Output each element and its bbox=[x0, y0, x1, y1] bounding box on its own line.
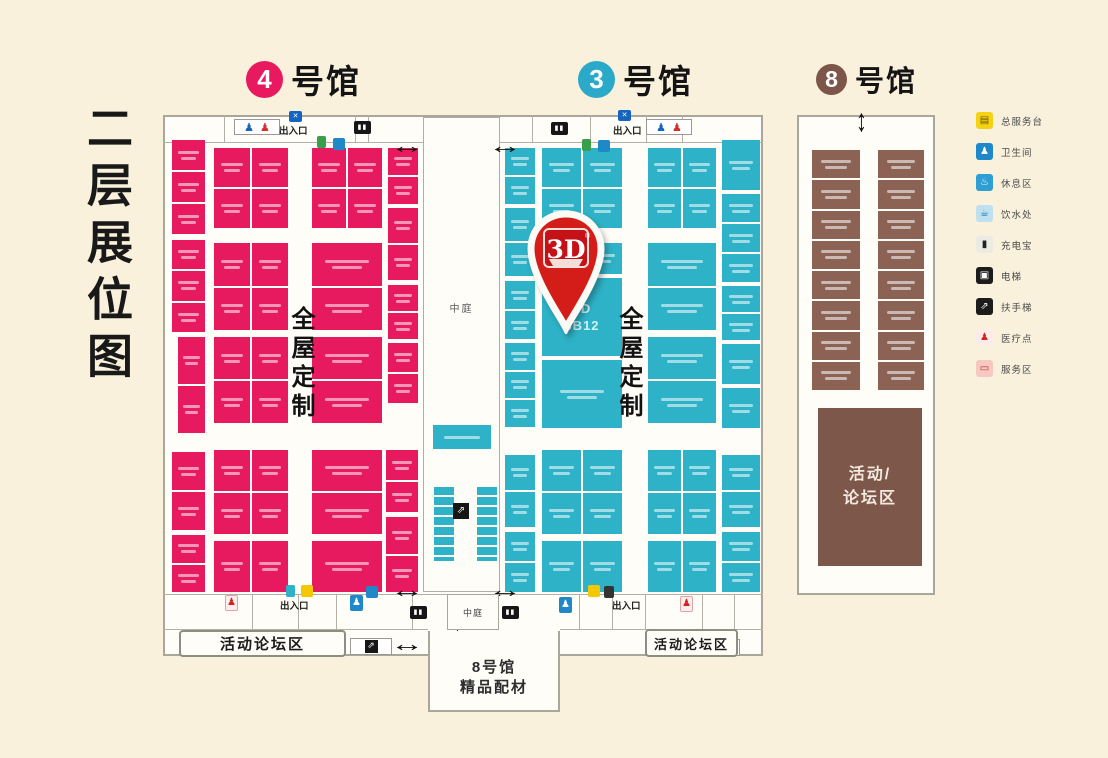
booth-text-bar bbox=[321, 210, 336, 213]
booth-text-bar bbox=[821, 281, 851, 284]
atrium-stalls bbox=[477, 487, 497, 561]
booth-text-bar bbox=[689, 163, 709, 166]
hall4-booths bbox=[172, 140, 205, 234]
hall8-passage: 8号馆 精品配材 bbox=[428, 631, 560, 712]
booth-cell bbox=[312, 337, 382, 379]
booth-text-bar bbox=[178, 250, 198, 253]
floor-map-page: 二层展位图 4 号馆 3 号馆 8 号馆 3D3B12♟♟♟♟✕✕▮▮▮▮♟♟♟… bbox=[0, 0, 1108, 758]
booth-text-bar bbox=[825, 347, 847, 350]
green-marker-icon bbox=[582, 139, 591, 151]
booth-text-bar bbox=[178, 281, 198, 284]
hall4-booths bbox=[172, 240, 205, 332]
booth-cell bbox=[542, 541, 581, 592]
booth-text-bar bbox=[181, 473, 196, 476]
booth-text-bar bbox=[259, 562, 281, 565]
hall4-header: 4 号馆 bbox=[246, 55, 361, 103]
legend: ▤总服务台♟卫生间♨休息区☕饮水处▮充电宝▣电梯⇗扶手梯♟医疗点▭服务区 bbox=[976, 112, 1043, 377]
booth-text-bar bbox=[594, 169, 612, 172]
booth-text-bar bbox=[654, 509, 674, 512]
booth-text-bar bbox=[394, 322, 413, 325]
hall4-label: 号馆 bbox=[291, 55, 361, 103]
wcpair-map-icon: ♟♟ bbox=[646, 119, 692, 135]
legend-item: ⇗扶手梯 bbox=[976, 298, 1043, 315]
booth-text-bar bbox=[332, 360, 362, 363]
booth-text-bar bbox=[318, 204, 339, 207]
legend-item: ♨休息区 bbox=[976, 174, 1043, 191]
booth-text-bar bbox=[729, 204, 753, 207]
elev-map-icon: ▮▮ bbox=[502, 606, 519, 619]
double-arrow-vertical-icon: ↕ bbox=[856, 105, 867, 137]
booth-cell bbox=[722, 532, 760, 561]
booth-cell bbox=[433, 425, 491, 449]
booth-text-bar bbox=[259, 163, 281, 166]
booth-cell bbox=[505, 455, 535, 490]
booth-text-bar bbox=[262, 360, 278, 363]
corridor-line bbox=[499, 594, 763, 595]
booth-text-bar bbox=[594, 472, 612, 475]
hall4-booths bbox=[214, 243, 288, 330]
hall3-booths bbox=[722, 286, 760, 340]
booth-text-bar bbox=[513, 163, 527, 166]
booth-text-bar bbox=[259, 466, 281, 469]
wcf-map-icon: ♟ bbox=[680, 596, 693, 612]
entrance-label: 出入口 bbox=[279, 123, 308, 137]
booth-cell bbox=[683, 148, 716, 187]
booth-cell bbox=[214, 493, 250, 534]
booth-text-bar bbox=[332, 404, 362, 407]
wcm-map-icon: ♟ bbox=[350, 595, 363, 611]
booth-text-bar bbox=[224, 472, 240, 475]
booth-cell bbox=[388, 285, 418, 311]
booth-text-bar bbox=[354, 204, 375, 207]
booth-text-bar bbox=[332, 515, 362, 518]
booth-text-bar bbox=[185, 411, 197, 414]
booth-text-bar bbox=[692, 210, 707, 213]
booth-cell bbox=[214, 381, 250, 423]
booth-text-bar bbox=[661, 260, 703, 263]
hall8-label: 号馆 bbox=[855, 58, 917, 100]
booth-text-bar bbox=[325, 304, 368, 307]
legend-label: 休息区 bbox=[1001, 176, 1033, 190]
booth-cell bbox=[214, 288, 250, 331]
booth-cell bbox=[172, 271, 205, 300]
booth-text-bar bbox=[394, 353, 413, 356]
booth-cell bbox=[648, 288, 716, 331]
service-desk-icon: ▤ bbox=[976, 112, 993, 129]
screen-map-icon: ✕ bbox=[289, 111, 302, 122]
booth-text-bar bbox=[891, 377, 912, 380]
booth-cell bbox=[312, 450, 382, 491]
booth-cell bbox=[683, 493, 716, 534]
booth-text-bar bbox=[513, 474, 527, 477]
booth-text-bar bbox=[891, 347, 912, 350]
booth-text-bar bbox=[732, 548, 749, 551]
booth-text-bar bbox=[224, 310, 240, 313]
booth-text-bar bbox=[224, 515, 240, 518]
booth-text-bar bbox=[224, 404, 240, 407]
booth-cell bbox=[505, 177, 535, 204]
booth-text-bar bbox=[394, 258, 413, 261]
booth-cell bbox=[214, 541, 250, 592]
escalator-icon: ⇗ bbox=[457, 506, 465, 516]
hall3-booths bbox=[722, 194, 760, 282]
booth-cell bbox=[388, 374, 418, 403]
booth-text-bar bbox=[513, 415, 527, 418]
booth-text-bar bbox=[392, 569, 412, 572]
booth-text-bar bbox=[821, 250, 851, 253]
booth-cell bbox=[878, 332, 924, 360]
service-area-icon: ▭ bbox=[976, 360, 993, 377]
elev-map-icon: ▮▮ bbox=[354, 121, 371, 134]
booth-cell bbox=[348, 189, 382, 228]
booth-text-bar bbox=[262, 210, 278, 213]
booth-text-bar bbox=[325, 509, 368, 512]
booth-text-bar bbox=[692, 169, 707, 172]
booth-text-bar bbox=[178, 544, 198, 547]
hall4-booths bbox=[312, 541, 382, 592]
booth-text-bar bbox=[511, 409, 530, 412]
info-screen-icon: ✕ bbox=[622, 112, 628, 119]
booth-text-bar bbox=[178, 183, 198, 186]
booth-text-bar bbox=[887, 311, 916, 314]
entrance-label: 出入口 bbox=[612, 598, 641, 612]
booth-text-bar bbox=[821, 160, 851, 163]
atrium-label: 中庭 bbox=[424, 300, 499, 315]
elev-map-icon: ▮▮ bbox=[551, 122, 568, 135]
booth-text-bar bbox=[661, 354, 703, 357]
hall3-booths bbox=[722, 140, 760, 190]
legend-label: 饮水处 bbox=[1001, 207, 1033, 221]
hall4-booths bbox=[388, 285, 418, 339]
hall8-number-badge: 8 bbox=[816, 64, 847, 95]
screen-map-icon: ✕ bbox=[618, 110, 631, 121]
booth-text-bar bbox=[325, 354, 368, 357]
booth-cell bbox=[648, 337, 716, 379]
booth-text-bar bbox=[553, 515, 571, 518]
booth-cell bbox=[878, 362, 924, 390]
booth-text-bar bbox=[511, 468, 530, 471]
booth-cell bbox=[348, 148, 382, 187]
booth-text-bar bbox=[729, 360, 753, 363]
yellow-marker-icon bbox=[588, 585, 600, 597]
corridor-separator bbox=[734, 595, 735, 630]
hall8-booths bbox=[812, 150, 860, 390]
booth-text-bar bbox=[262, 404, 278, 407]
wcm-map-icon: ♟ bbox=[559, 597, 572, 613]
hall3-booths bbox=[722, 455, 760, 527]
booth-text-bar bbox=[825, 226, 847, 229]
booth-text-bar bbox=[332, 472, 362, 475]
booth-cell bbox=[178, 386, 205, 433]
booth-text-bar bbox=[732, 329, 749, 332]
booth-text-bar bbox=[395, 537, 409, 540]
booth-cell bbox=[172, 140, 205, 170]
booth-cell bbox=[648, 381, 716, 423]
elevator-icon: ▮▮ bbox=[358, 124, 368, 131]
booth-text-bar bbox=[729, 573, 753, 576]
elev-map-icon: ▮▮ bbox=[410, 606, 427, 619]
booth-text-bar bbox=[262, 266, 278, 269]
booth-cell bbox=[683, 189, 716, 228]
booth-text-bar bbox=[181, 319, 196, 322]
booth-cell bbox=[252, 493, 288, 534]
booth-text-bar bbox=[221, 354, 243, 357]
booth-text-bar bbox=[354, 163, 375, 166]
legend-label: 医疗点 bbox=[1001, 331, 1033, 345]
booth-text-bar bbox=[325, 562, 368, 565]
booth-text-bar bbox=[825, 287, 847, 290]
booth-text-bar bbox=[667, 360, 697, 363]
booth-text-bar bbox=[178, 507, 198, 510]
booth-cell bbox=[878, 150, 924, 178]
booth-text-bar bbox=[221, 466, 243, 469]
booth-text-bar bbox=[221, 398, 243, 401]
booth-text-bar bbox=[394, 384, 413, 387]
legend-item: ▣电梯 bbox=[976, 267, 1043, 284]
booth-text-bar bbox=[394, 186, 413, 189]
booth-cell bbox=[386, 517, 418, 554]
booth-text-bar bbox=[825, 377, 847, 380]
booth-text-bar bbox=[181, 287, 196, 290]
booth-cell bbox=[172, 492, 205, 530]
booth-text-bar bbox=[560, 390, 604, 393]
booth-cell bbox=[172, 565, 205, 593]
wcf-map-icon: ♟ bbox=[225, 595, 238, 611]
booth-text-bar bbox=[661, 398, 703, 401]
booth-text-bar bbox=[259, 398, 281, 401]
booth-cell bbox=[812, 241, 860, 269]
blue-marker-icon bbox=[333, 138, 345, 150]
booth-text-bar bbox=[825, 196, 847, 199]
hall3-booths bbox=[542, 360, 622, 428]
booth-cell bbox=[812, 301, 860, 329]
booth-text-bar bbox=[667, 404, 697, 407]
booth-text-bar bbox=[332, 568, 362, 571]
pin-ribbon bbox=[549, 259, 583, 266]
booth-cell bbox=[683, 450, 716, 491]
booth-text-bar bbox=[732, 301, 749, 304]
booth-text-bar bbox=[511, 352, 530, 355]
booth-text-bar bbox=[887, 160, 916, 163]
legend-item: ▤总服务台 bbox=[976, 112, 1043, 129]
booth-cell bbox=[214, 148, 250, 187]
corridor-separator bbox=[645, 595, 646, 630]
booth-text-bar bbox=[590, 562, 614, 565]
booth-text-bar bbox=[221, 260, 243, 263]
booth-text-bar bbox=[332, 310, 362, 313]
booth-text-bar bbox=[224, 360, 240, 363]
booth-cell bbox=[172, 303, 205, 332]
booth-text-bar bbox=[511, 505, 530, 508]
booth-text-bar bbox=[667, 310, 697, 313]
booth-text-bar bbox=[178, 215, 198, 218]
booth-cell bbox=[542, 360, 622, 428]
mens-restroom-icon: ♟ bbox=[976, 143, 993, 160]
booth-cell bbox=[214, 337, 250, 379]
booth-text-bar bbox=[318, 163, 339, 166]
booth-cell bbox=[172, 172, 205, 202]
booth-cell bbox=[722, 388, 760, 428]
hall4-booths bbox=[312, 337, 382, 423]
booth-cell bbox=[722, 344, 760, 384]
corridor-separator bbox=[336, 595, 337, 630]
hall4-booths bbox=[214, 148, 288, 228]
booth-text-bar bbox=[221, 509, 243, 512]
booth-text-bar bbox=[567, 396, 597, 399]
escalator-icon: ⇗ bbox=[976, 298, 993, 315]
booth-cell bbox=[505, 492, 535, 527]
teal-marker-icon bbox=[286, 585, 295, 597]
hall8-header: 8 号馆 bbox=[816, 58, 917, 100]
booth-text-bar bbox=[224, 266, 240, 269]
entrance-label: 出入口 bbox=[280, 598, 309, 612]
booth-text-bar bbox=[891, 317, 912, 320]
booth-text-bar bbox=[396, 227, 410, 230]
booth-cell bbox=[722, 314, 760, 340]
wcpair-map-icon: ♟♟ bbox=[234, 119, 280, 135]
booth-text-bar bbox=[891, 256, 912, 259]
booth-text-bar bbox=[891, 287, 912, 290]
booth-text-bar bbox=[654, 466, 674, 469]
booth-cell bbox=[214, 450, 250, 491]
booth-text-bar bbox=[821, 311, 851, 314]
booth-cell bbox=[252, 148, 288, 187]
booth-text-bar bbox=[511, 380, 530, 383]
booth-cell bbox=[386, 450, 418, 480]
booth-text-bar bbox=[821, 341, 851, 344]
booth-text-bar bbox=[887, 281, 916, 284]
info-screen-icon: ✕ bbox=[293, 113, 299, 120]
hall3-booths bbox=[722, 344, 760, 384]
booth-text-bar bbox=[553, 169, 571, 172]
location-pin-icon[interactable]: 3D ® bbox=[518, 206, 614, 334]
hall4-booths bbox=[214, 337, 288, 423]
legend-item: ▭服务区 bbox=[976, 360, 1043, 377]
booth-cell bbox=[583, 450, 622, 491]
booth-text-bar bbox=[825, 256, 847, 259]
booth-cell bbox=[648, 243, 716, 286]
booth-cell bbox=[812, 211, 860, 239]
power-bank-icon: ▮ bbox=[976, 236, 993, 253]
booth-cell bbox=[648, 493, 681, 534]
booth-text-bar bbox=[825, 317, 847, 320]
booth-text-bar bbox=[729, 505, 753, 508]
legend-label: 总服务台 bbox=[1001, 114, 1043, 128]
booth-text-bar bbox=[262, 310, 278, 313]
corridor-separator bbox=[532, 115, 533, 143]
hall3-header: 3 号馆 bbox=[578, 55, 693, 103]
woman-icon: ♟ bbox=[227, 598, 236, 608]
elevator-icon: ▮▮ bbox=[506, 609, 516, 616]
legend-label: 卫生间 bbox=[1001, 145, 1033, 159]
booth-text-bar bbox=[394, 221, 413, 224]
booth-text-bar bbox=[511, 186, 530, 189]
hall3-booths bbox=[542, 541, 622, 592]
hall4-booths bbox=[172, 535, 205, 592]
booth-text-bar bbox=[667, 266, 697, 269]
booth-text-bar bbox=[729, 468, 753, 471]
booth-text-bar bbox=[689, 562, 709, 565]
booth-text-bar bbox=[692, 515, 707, 518]
hall4-booths bbox=[388, 208, 418, 280]
booth-cell bbox=[505, 532, 535, 561]
booth-text-bar bbox=[891, 166, 912, 169]
hall8-passage-line1: 8号馆 bbox=[472, 658, 516, 678]
booth-text-bar bbox=[224, 169, 240, 172]
booth-text-bar bbox=[732, 210, 749, 213]
booth-cell bbox=[312, 148, 346, 187]
booth-text-bar bbox=[178, 151, 198, 154]
booth-cell bbox=[722, 254, 760, 282]
booth-text-bar bbox=[259, 509, 281, 512]
drinking-water-icon: ☕ bbox=[976, 205, 993, 222]
booth-text-bar bbox=[224, 568, 240, 571]
booth-text-bar bbox=[887, 220, 916, 223]
booth-cell bbox=[388, 245, 418, 280]
booth-text-bar bbox=[321, 169, 336, 172]
hall8-forum-line1: 活动/ bbox=[849, 463, 891, 487]
booth-text-bar bbox=[259, 304, 281, 307]
booth-text-bar bbox=[325, 260, 368, 263]
booth-text-bar bbox=[513, 358, 527, 361]
escalator-icon: ⇗ bbox=[365, 640, 378, 653]
booth-cell bbox=[312, 189, 346, 228]
hall4-booths bbox=[178, 337, 205, 433]
booth-text-bar bbox=[183, 356, 200, 359]
booth-text-bar bbox=[262, 169, 278, 172]
booth-text-bar bbox=[821, 220, 851, 223]
booth-cell bbox=[312, 541, 382, 592]
booth-text-bar bbox=[729, 295, 753, 298]
booth-cell bbox=[214, 189, 250, 228]
booth-text-bar bbox=[396, 359, 410, 362]
double-arrow-horizontal-icon: ↔ bbox=[390, 135, 424, 157]
booth-text-bar bbox=[657, 210, 672, 213]
booth-cell bbox=[312, 493, 382, 534]
booth-cell bbox=[312, 288, 382, 331]
booth-text-bar bbox=[178, 574, 198, 577]
escsm-map-icon: ⇗ bbox=[453, 503, 469, 519]
booth-cell bbox=[172, 535, 205, 563]
booth-text-bar bbox=[511, 542, 530, 545]
double-arrow-horizontal-icon: ↔ bbox=[390, 579, 424, 601]
booth-text-bar bbox=[396, 163, 410, 166]
legend-label: 扶手梯 bbox=[1001, 300, 1033, 314]
booth-cell bbox=[812, 180, 860, 208]
man-icon: ♟ bbox=[656, 122, 666, 133]
booth-cell bbox=[648, 541, 681, 592]
booth-text-bar bbox=[590, 466, 614, 469]
booth-text-bar bbox=[689, 204, 709, 207]
booth-cell bbox=[722, 563, 760, 592]
forum-zone-box: 活动论坛区 bbox=[645, 629, 738, 657]
atrium-small-box: 中庭 bbox=[447, 594, 499, 630]
dark-marker-icon bbox=[604, 586, 614, 598]
corridor-separator bbox=[702, 595, 703, 630]
booth-cell bbox=[878, 241, 924, 269]
woman-icon: ♟ bbox=[260, 122, 270, 133]
booth-text-bar bbox=[887, 250, 916, 253]
legend-item: ▮充电宝 bbox=[976, 236, 1043, 253]
booth-cell bbox=[312, 381, 382, 423]
booth-text-bar bbox=[654, 204, 674, 207]
booth-text-bar bbox=[661, 304, 703, 307]
booth-text-bar bbox=[185, 362, 197, 365]
booth-text-bar bbox=[396, 328, 410, 331]
hall4-booths bbox=[386, 450, 418, 512]
booth-text-bar bbox=[396, 264, 410, 267]
booth-text-bar bbox=[332, 266, 362, 269]
